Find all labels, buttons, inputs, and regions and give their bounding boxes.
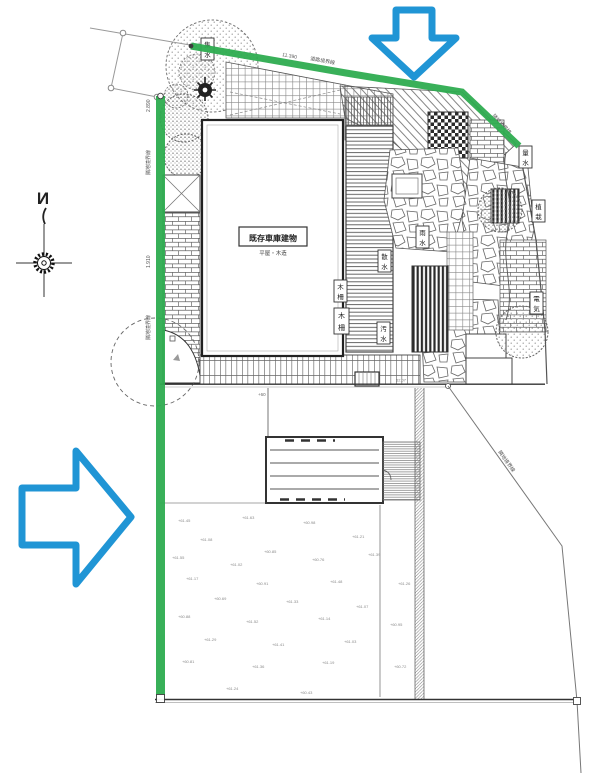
- equipment-box-char: 栽: [535, 212, 542, 221]
- deck-fence-char: 木: [338, 311, 345, 320]
- spot-elevation: +60.76: [312, 557, 325, 562]
- equipment-box-char: 柵: [337, 292, 344, 301]
- spot-elevation: +60.81: [182, 659, 195, 664]
- dim-left-upper: 2.890: [146, 99, 152, 112]
- building-footprint: 既存車庫建物 平屋・木造: [202, 120, 343, 356]
- wood-deck: [346, 97, 393, 352]
- spot-elevation: +60.91: [256, 581, 269, 586]
- right-retaining-band: [415, 388, 424, 700]
- dim-left-lower: 1.910: [146, 255, 152, 268]
- spot-elevation: +61.39: [368, 552, 381, 557]
- spot-elevation: +61.17: [186, 576, 199, 581]
- equipment-box: 量水: [519, 146, 532, 168]
- equipment-box: 散水: [378, 250, 391, 272]
- spot-elevation: +61.48: [330, 579, 343, 584]
- grating: [412, 266, 448, 352]
- spot-elevation: +61.63: [242, 515, 255, 520]
- equipment-box-char: 水: [381, 262, 388, 271]
- spot-elevation: +61.08: [200, 537, 213, 542]
- spot-elevation: +61.36: [252, 664, 265, 669]
- north-letter: N: [37, 189, 49, 208]
- stairs: [346, 97, 393, 125]
- equipment-box-char: 水: [380, 334, 387, 343]
- spot-elevation: +61.55: [172, 555, 185, 560]
- tree-canopy: [478, 188, 522, 232]
- building-name: 既存車庫建物: [249, 233, 297, 243]
- spot-elevation: +61.19: [322, 660, 335, 665]
- equipment-box-char: 気: [533, 304, 540, 313]
- spot-elevation: +60.69: [214, 596, 227, 601]
- label-left-lower: 隣地境界線: [145, 315, 152, 340]
- spot-elevation: +60.95: [390, 622, 403, 627]
- spot-elevation: +60.85: [264, 549, 277, 554]
- spot-elevation: +61.02: [230, 562, 243, 567]
- boundary-corner-node: [574, 698, 581, 705]
- bottom-paving-strip: [200, 355, 420, 386]
- spot-elevation: +61.03: [344, 639, 357, 644]
- spot-elevation: +61.45: [178, 518, 191, 523]
- spot-elevation: +61.33: [286, 599, 299, 604]
- building-sub-label: 平屋・木造: [259, 249, 287, 257]
- spot-elevation: +60.98: [303, 520, 316, 525]
- deck-fence-char: 柵: [338, 323, 345, 332]
- spot-elevation: +60.43: [300, 690, 313, 695]
- spot-elevation: +61.41: [272, 642, 285, 647]
- spot-elevation: +61.29: [204, 637, 217, 642]
- spot-elevation: +61.21: [352, 534, 365, 539]
- equipment-box: 汚水: [377, 322, 390, 344]
- spot-elevation: +61.14: [318, 616, 331, 621]
- spot-elevation: +61.52: [246, 619, 259, 624]
- equipment-box: 木柵: [334, 280, 347, 302]
- equipment-box-char: 量: [522, 149, 529, 157]
- spot-elevation: +61.07: [356, 604, 369, 609]
- equipment-box: 電気: [530, 292, 543, 314]
- equipment-box: 植栽: [532, 200, 545, 222]
- spot-elevation: +61.26: [398, 581, 411, 586]
- spot-elevation: +61.24: [226, 686, 239, 691]
- deck-fence-label: 木 柵: [334, 308, 349, 334]
- equipment-box: 雨水: [416, 226, 429, 248]
- equipment-box-char: 散: [381, 252, 388, 261]
- spot-elevation: +60.88: [178, 614, 191, 619]
- spot-elevation: +60.72: [394, 664, 407, 669]
- site-plan-drawing: 既存車庫建物 平屋・木造: [0, 0, 600, 773]
- equipment-box-char: 雨: [419, 229, 426, 237]
- site-plan-screenshot: 既存車庫建物 平屋・木造: [0, 0, 600, 773]
- plus60-label: +60: [258, 392, 266, 397]
- equipment-box-char: 木: [337, 282, 344, 291]
- equipment-box-char: 植: [535, 202, 542, 211]
- ramp-steps: [383, 442, 420, 500]
- equipment-box-char: 汚: [380, 325, 387, 333]
- label-left-upper: 隣地境界線: [145, 150, 152, 175]
- equipment-box-char: 水: [522, 158, 529, 167]
- equipment-box-char: 水: [419, 238, 426, 247]
- equipment-box-char: 電: [533, 295, 540, 303]
- bottom-dim-label: 62.07: [396, 378, 407, 383]
